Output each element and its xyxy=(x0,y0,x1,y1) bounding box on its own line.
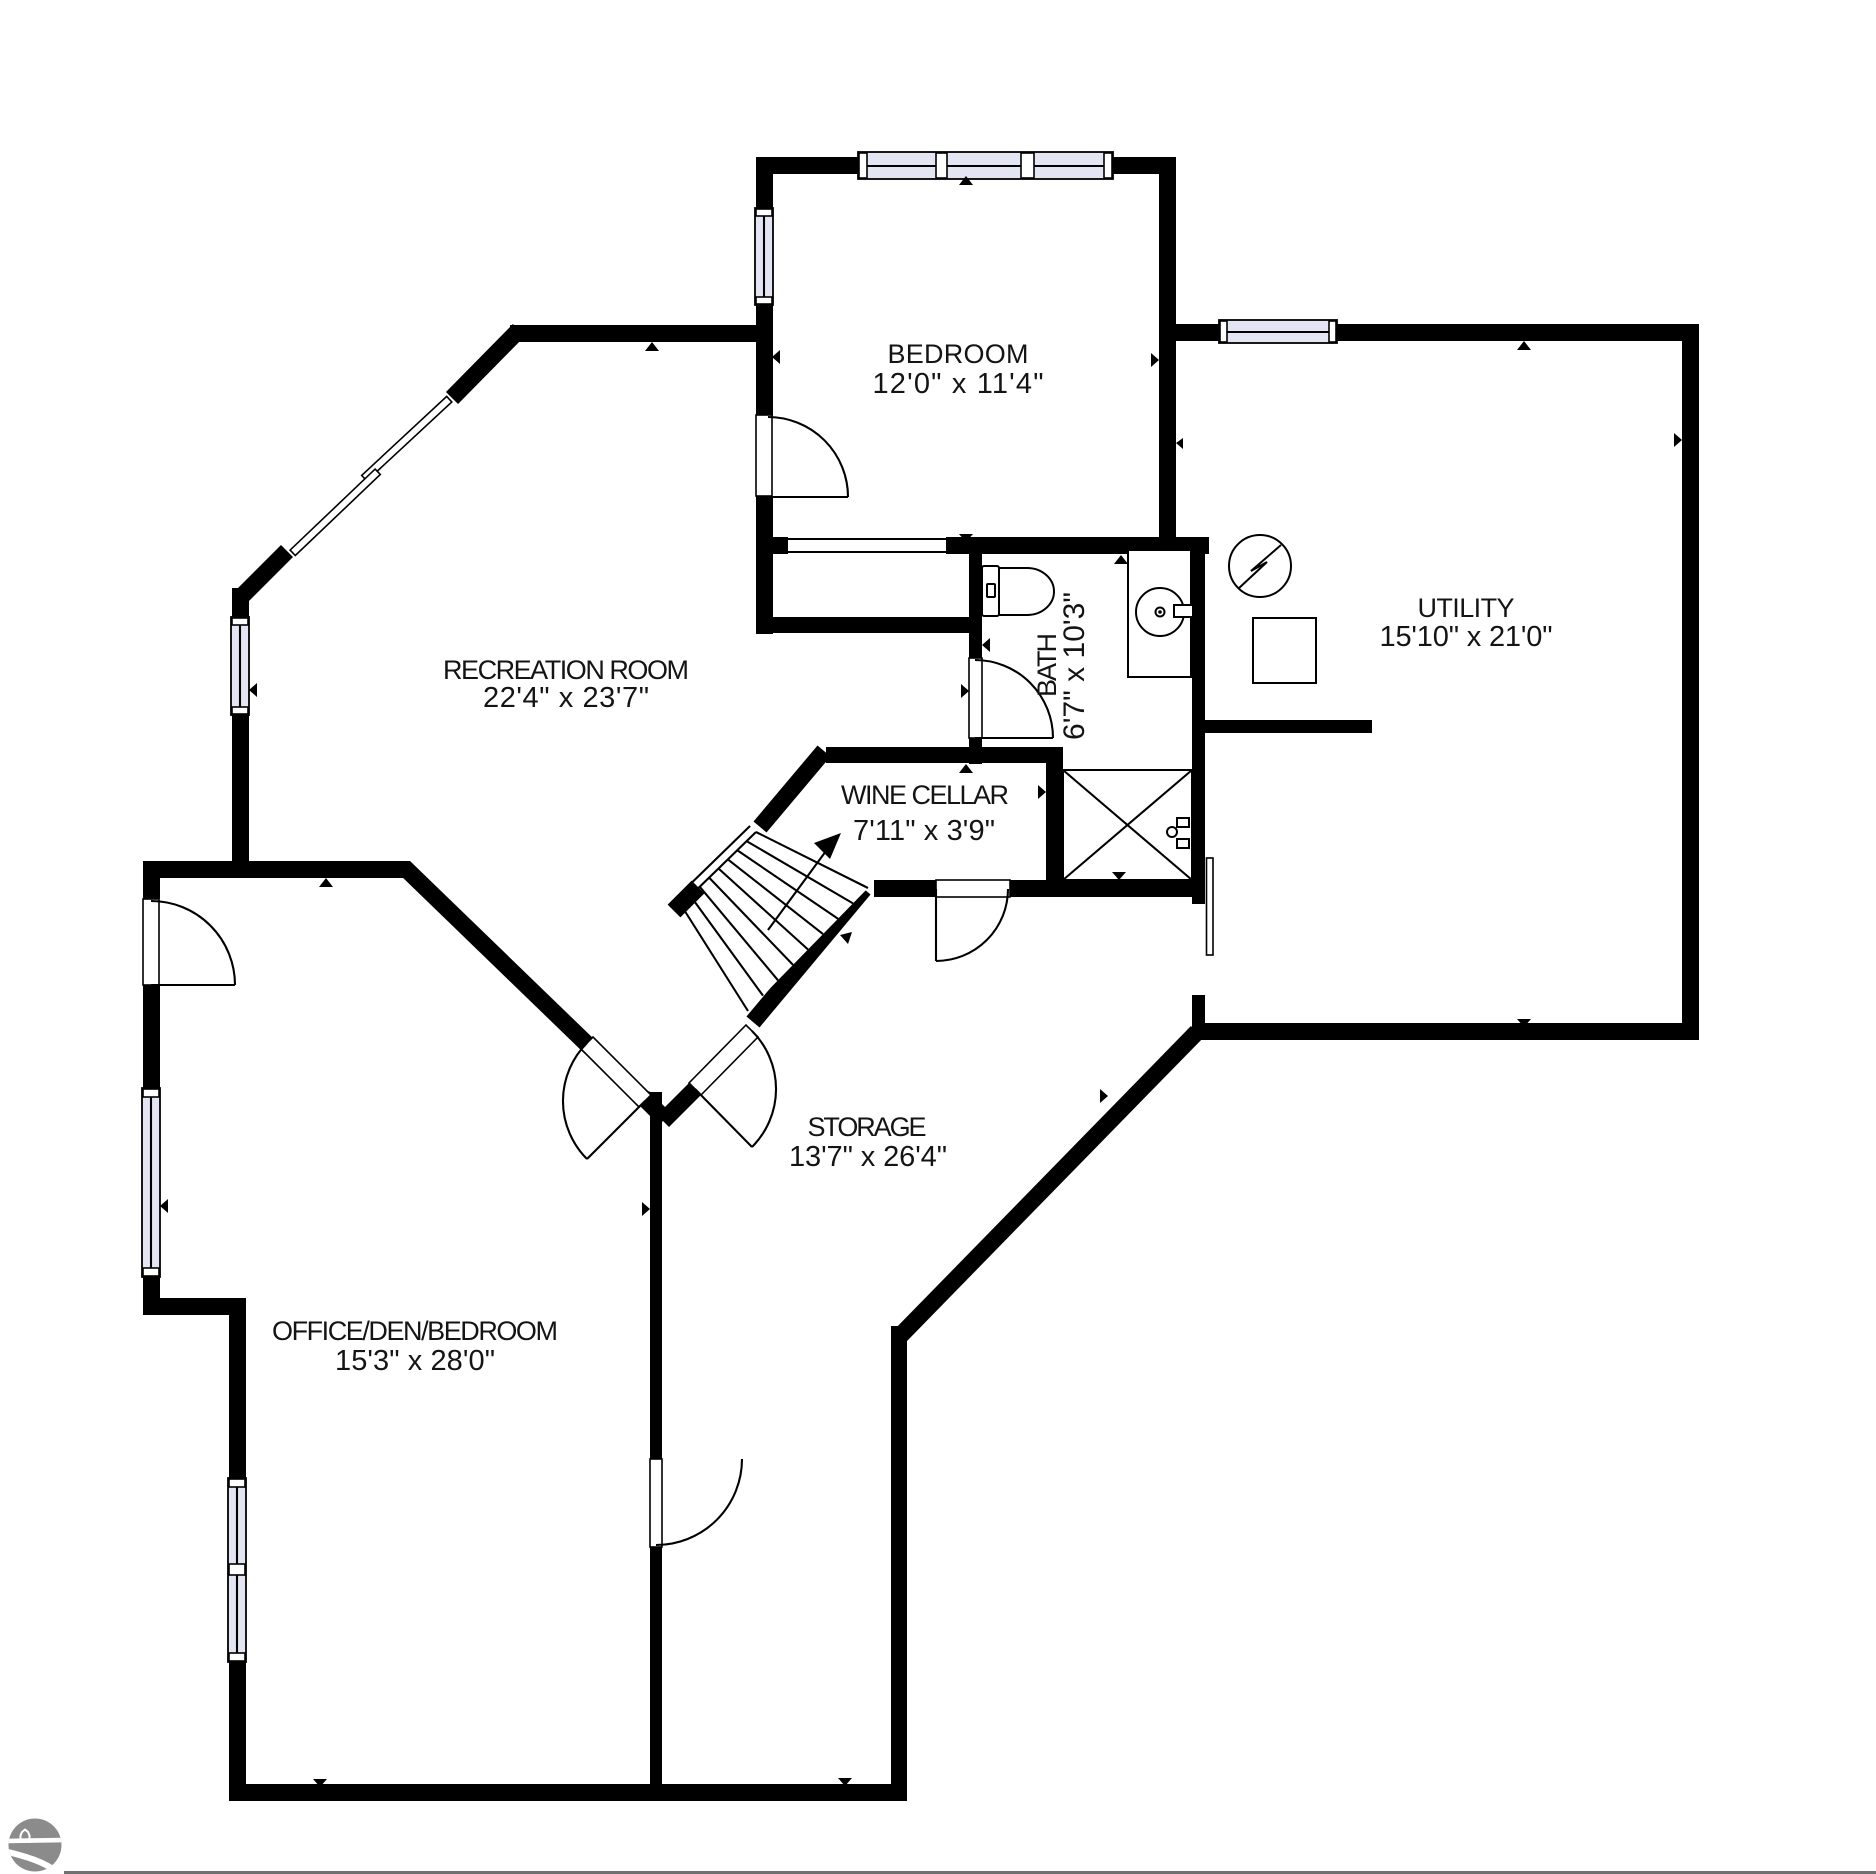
svg-text:12'0" x 11'4": 12'0" x 11'4" xyxy=(873,368,1044,400)
svg-text:UTILITY: UTILITY xyxy=(1418,593,1515,623)
svg-text:22'4" x 23'7": 22'4" x 23'7" xyxy=(483,682,649,714)
svg-text:BEDROOM: BEDROOM xyxy=(888,339,1029,369)
svg-text:15'3" x 28'0": 15'3" x 28'0" xyxy=(335,1345,495,1377)
svg-text:WINE CELLAR: WINE CELLAR xyxy=(841,780,1009,810)
svg-text:STORAGE: STORAGE xyxy=(808,1112,927,1142)
svg-text:15'10" x 21'0": 15'10" x 21'0" xyxy=(1380,621,1553,653)
svg-text:7'11" x 3'9": 7'11" x 3'9" xyxy=(853,815,995,847)
svg-text:13'7" x 26'4": 13'7" x 26'4" xyxy=(789,1141,947,1173)
svg-text:RECREATION ROOM: RECREATION ROOM xyxy=(443,655,689,685)
svg-text:OFFICE/DEN/BEDROOM: OFFICE/DEN/BEDROOM xyxy=(272,1316,558,1346)
svg-text:6'7" x 10'3": 6'7" x 10'3" xyxy=(1058,592,1091,740)
